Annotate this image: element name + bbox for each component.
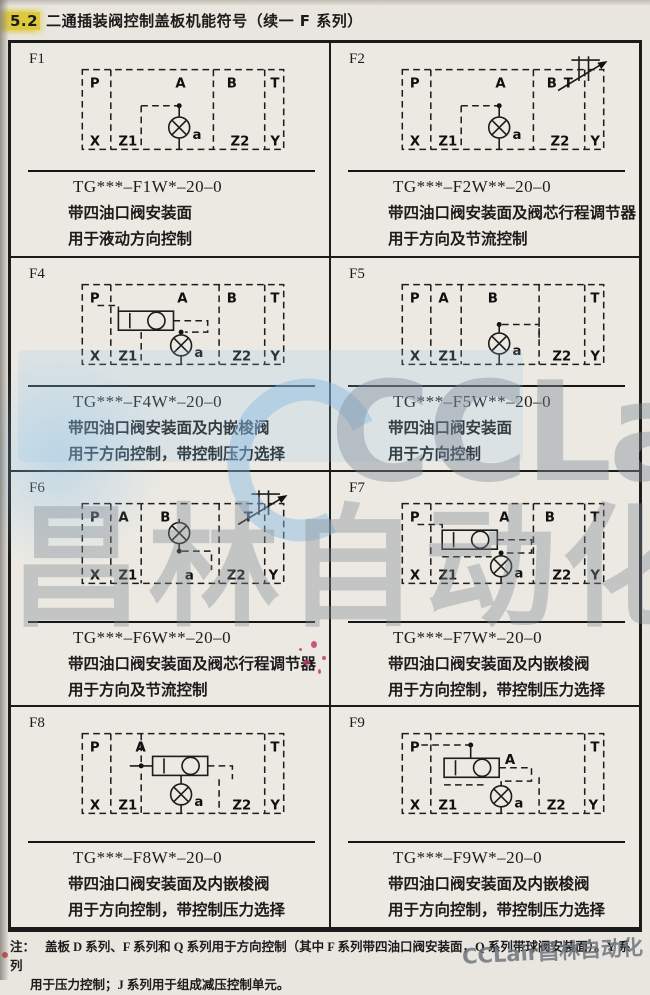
divider-rule <box>28 385 315 387</box>
shuttle-valve-icon <box>442 530 497 549</box>
f6-hydraulic-diagram: P A B T X Z1 a Z2 Y <box>69 490 297 597</box>
footnote-line-2: 用于压力控制；J 系列用于组成减压控制单元。 <box>30 976 642 995</box>
description-line: 带四油口阀安装面 <box>68 201 329 223</box>
description-line: 用于液动方向控制 <box>68 227 329 249</box>
port-x-label: X <box>90 135 100 150</box>
port-p-label: P <box>410 292 420 307</box>
page-title: 二通插装阀控制盖板机能符号（续一 F 系列） <box>46 12 363 30</box>
cell-f8: F8 P A T <box>11 707 329 927</box>
port-z2-label: Z2 <box>552 569 571 584</box>
port-y-label: Y <box>589 569 600 584</box>
port-a-pilot-label: a <box>185 569 194 584</box>
port-x-label: X <box>90 350 100 365</box>
cell-id: F4 <box>29 266 45 283</box>
port-z2-label: Z2 <box>232 350 251 365</box>
port-z2-label: Z2 <box>547 799 566 814</box>
model-code: TG***–F4W*–20–0 <box>73 392 329 412</box>
symbol-table: F1 P A B T X Z1 a Z2 Y <box>8 40 642 932</box>
description-line: 带四油口阀安装面及阀芯行程调节器 <box>68 652 329 674</box>
description-line: 用于方向控制，带控制压力选择 <box>388 898 639 920</box>
port-p-label: P <box>410 77 420 92</box>
footnote: 注：盖板 D 系列、F 系列和 Q 系列用于方向控制（其中 F 系列带四油口阀安… <box>10 938 642 995</box>
model-code: TG***–F8W*–20–0 <box>73 848 329 868</box>
port-t-label: T <box>590 292 599 307</box>
pilot-valve-icon <box>169 106 190 150</box>
f8-hydraulic-diagram: P A T X Z1 a Z2 Y <box>69 720 297 827</box>
description-line: 用于方向及节流控制 <box>388 227 639 249</box>
port-p-label: P <box>410 511 420 526</box>
port-p-label: P <box>90 292 100 307</box>
cell-f7: F7 P A B T <box>331 472 639 705</box>
divider-rule <box>348 170 625 172</box>
cell-f5: F5 P A B T X Z1 a Z2 Y <box>331 258 639 470</box>
section-title: 5.2二通插装阀控制盖板机能符号（续一 F 系列） <box>8 10 638 31</box>
port-b-label: B <box>488 292 498 307</box>
port-z2-label: Z2 <box>232 799 251 814</box>
shuttle-valve-icon <box>118 311 173 330</box>
port-x-label: X <box>90 799 100 814</box>
port-a-pilot-label: a <box>514 567 523 582</box>
divider-rule <box>28 621 315 623</box>
divider-rule <box>28 841 315 843</box>
port-z1-label: Z1 <box>118 135 137 150</box>
port-a-label: A <box>177 292 188 307</box>
description-line: 用于方向控制，带控制压力选择 <box>68 442 329 464</box>
port-z2-label: Z2 <box>231 135 250 150</box>
pilot-valve-icon <box>491 781 512 813</box>
f2-hydraulic-diagram: P A B T X Z1 a Z2 Y <box>389 56 617 163</box>
pilot-valve-icon <box>491 553 512 583</box>
cell-id: F9 <box>349 715 365 732</box>
cell-f1: F1 P A B T X Z1 a Z2 Y <box>11 43 329 256</box>
cell-id: F1 <box>29 51 45 68</box>
port-y-label: Y <box>269 799 280 814</box>
cell-f9: F9 P A T <box>331 707 639 927</box>
port-a-label: A <box>175 77 186 92</box>
pilot-valve-icon <box>171 332 192 364</box>
port-t-label: T <box>270 741 279 756</box>
section-number: 5.2 <box>8 12 40 30</box>
port-y-label: Y <box>589 135 600 150</box>
f4-hydraulic-diagram: P A B T X Z1 a Z2 Y <box>69 271 297 378</box>
port-z1-label: Z1 <box>438 135 457 150</box>
port-a-pilot-label: a <box>514 797 523 812</box>
pilot-valve-icon <box>169 519 190 551</box>
port-b-label: B <box>227 77 237 92</box>
port-a-label: A <box>118 511 129 526</box>
f9-hydraulic-diagram: P A T X Z1 a Z2 Y <box>389 720 617 827</box>
port-x-label: X <box>410 135 420 150</box>
model-code: TG***–F5W**–20–0 <box>393 392 639 412</box>
cell-id: F8 <box>29 715 45 732</box>
footnote-label: 注： <box>10 938 35 957</box>
port-y-label: Y <box>588 799 599 814</box>
port-a-pilot-label: a <box>194 346 203 361</box>
pilot-valve-icon <box>171 775 192 813</box>
port-z1-label: Z1 <box>438 799 457 814</box>
footnote-line-1: 注：盖板 D 系列、F 系列和 Q 系列用于方向控制（其中 F 系列带四油口阀安… <box>10 938 642 976</box>
port-t-label: T <box>590 511 599 526</box>
model-code: TG***–F2W**–20–0 <box>393 177 639 197</box>
port-a-label: A <box>499 511 510 526</box>
cell-id: F6 <box>29 480 45 497</box>
port-z2-label: Z2 <box>552 350 571 365</box>
port-z2-label: Z2 <box>227 569 246 584</box>
description-line: 带四油口阀安装面及内嵌梭阀 <box>388 652 639 674</box>
description-line: 用于方向控制，带控制压力选择 <box>388 678 639 700</box>
port-z2-label: Z2 <box>551 135 570 150</box>
port-x-label: X <box>410 569 420 584</box>
port-b-label: B <box>547 77 557 92</box>
port-p-label: P <box>410 741 420 756</box>
model-code: TG***–F1W*–20–0 <box>73 177 329 197</box>
port-z1-label: Z1 <box>118 569 137 584</box>
description-line: 带四油口阀安装面及内嵌梭阀 <box>68 416 329 438</box>
model-code: TG***–F9W*–20–0 <box>393 848 639 868</box>
f1-hydraulic-diagram: P A B T X Z1 a Z2 Y <box>69 56 297 163</box>
cell-id: F7 <box>349 480 365 497</box>
port-a-label: A <box>505 753 516 768</box>
port-a-pilot-label: a <box>513 128 522 143</box>
port-y-label: Y <box>269 350 280 365</box>
divider-rule <box>348 841 625 843</box>
port-p-label: P <box>90 77 100 92</box>
port-z1-label: Z1 <box>118 799 137 814</box>
description-line: 用于方向及节流控制 <box>68 678 329 700</box>
model-code: TG***–F6W**–20–0 <box>73 628 329 648</box>
port-y-label: Y <box>589 350 600 365</box>
port-a-pilot-label: a <box>513 344 522 359</box>
port-a-pilot-label: a <box>194 795 203 810</box>
port-z1-label: Z1 <box>118 350 137 365</box>
pilot-valve-icon <box>489 106 510 150</box>
port-b-label: B <box>160 511 170 526</box>
divider-rule <box>28 170 315 172</box>
port-x-label: X <box>90 569 100 584</box>
port-a-label: A <box>495 77 506 92</box>
port-p-label: P <box>90 511 100 526</box>
cell-f4: F4 P A B T <box>11 258 329 470</box>
divider-rule <box>348 385 625 387</box>
description-line: 带四油口阀安装面及内嵌梭阀 <box>68 872 329 894</box>
cell-id: F2 <box>349 51 365 68</box>
port-b-label: B <box>545 511 555 526</box>
port-x-label: X <box>410 799 420 814</box>
port-y-label: Y <box>269 135 280 150</box>
pilot-valve-icon <box>489 325 510 365</box>
page-edge-shadow-top <box>0 0 650 6</box>
port-t-label: T <box>270 77 279 92</box>
port-t-label: T <box>270 292 279 307</box>
f5-hydraulic-diagram: P A B T X Z1 a Z2 Y <box>389 271 617 378</box>
port-x-label: X <box>410 350 420 365</box>
port-t-label: T <box>590 741 599 756</box>
ink-speck <box>2 952 8 958</box>
port-z1-label: Z1 <box>438 569 457 584</box>
description-line: 带四油口阀安装面 <box>388 416 639 438</box>
shuttle-valve-icon <box>153 756 208 775</box>
port-t-label: T <box>564 77 573 92</box>
shuttle-valve-icon <box>444 758 499 777</box>
port-z1-label: Z1 <box>438 350 457 365</box>
port-a-label: A <box>136 741 147 756</box>
port-p-label: P <box>90 741 100 756</box>
f7-hydraulic-diagram: P A B T X Z1 a Z2 Y <box>389 490 617 597</box>
port-b-label: B <box>227 292 237 307</box>
description-line: 带四油口阀安装面及阀芯行程调节器 <box>388 201 639 223</box>
port-a-pilot-label: a <box>193 128 202 143</box>
cell-f2: F2 P A B <box>331 43 639 256</box>
description-line: 用于方向控制 <box>388 442 639 464</box>
port-t-label: T <box>244 511 253 526</box>
model-code: TG***–F7W*–20–0 <box>393 628 639 648</box>
description-line: 带四油口阀安装面及内嵌梭阀 <box>388 872 639 894</box>
divider-rule <box>348 621 625 623</box>
port-y-label: Y <box>268 569 279 584</box>
cell-f6: F6 P A B <box>11 472 329 705</box>
cell-id: F5 <box>349 266 365 283</box>
description-line: 用于方向控制，带控制压力选择 <box>68 898 329 920</box>
scanned-catalog-page: { "page": { "section": "5.2", "title": "… <box>0 0 650 980</box>
port-a-label: A <box>438 292 449 307</box>
